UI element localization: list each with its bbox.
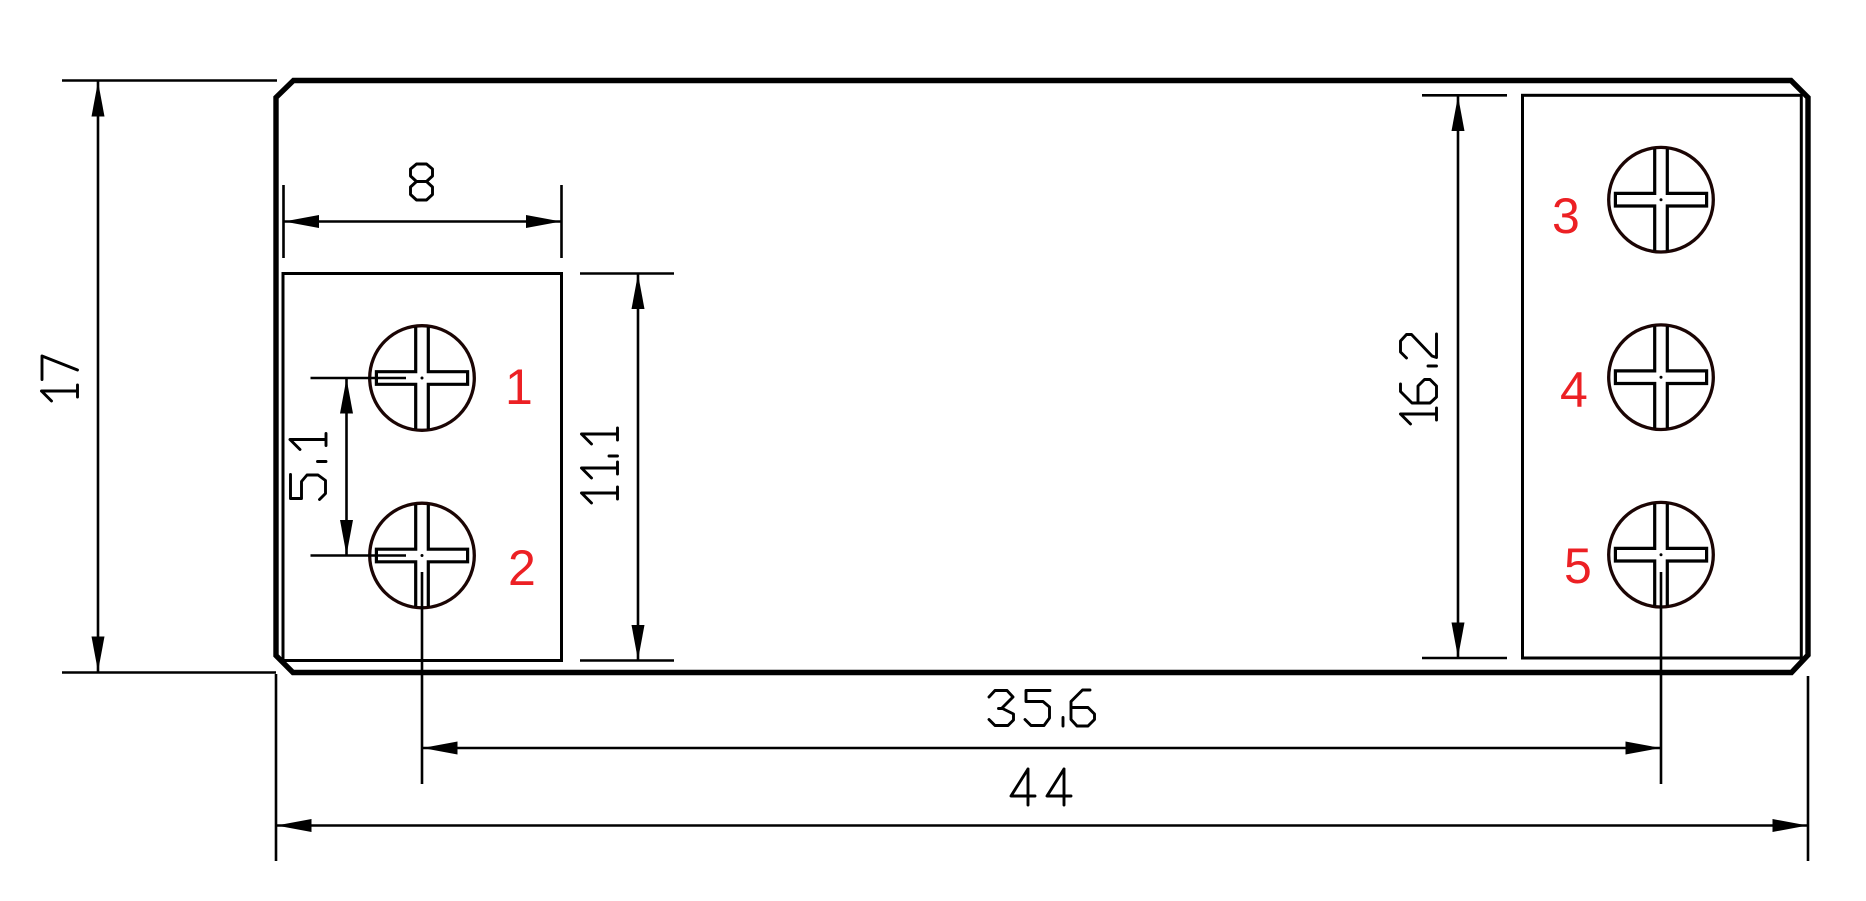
svg-text:3: 3 [1552, 188, 1580, 244]
svg-text:2: 2 [508, 540, 536, 596]
svg-text:5: 5 [1564, 538, 1592, 594]
svg-text:4: 4 [1560, 362, 1588, 418]
svg-text:1: 1 [505, 359, 533, 415]
